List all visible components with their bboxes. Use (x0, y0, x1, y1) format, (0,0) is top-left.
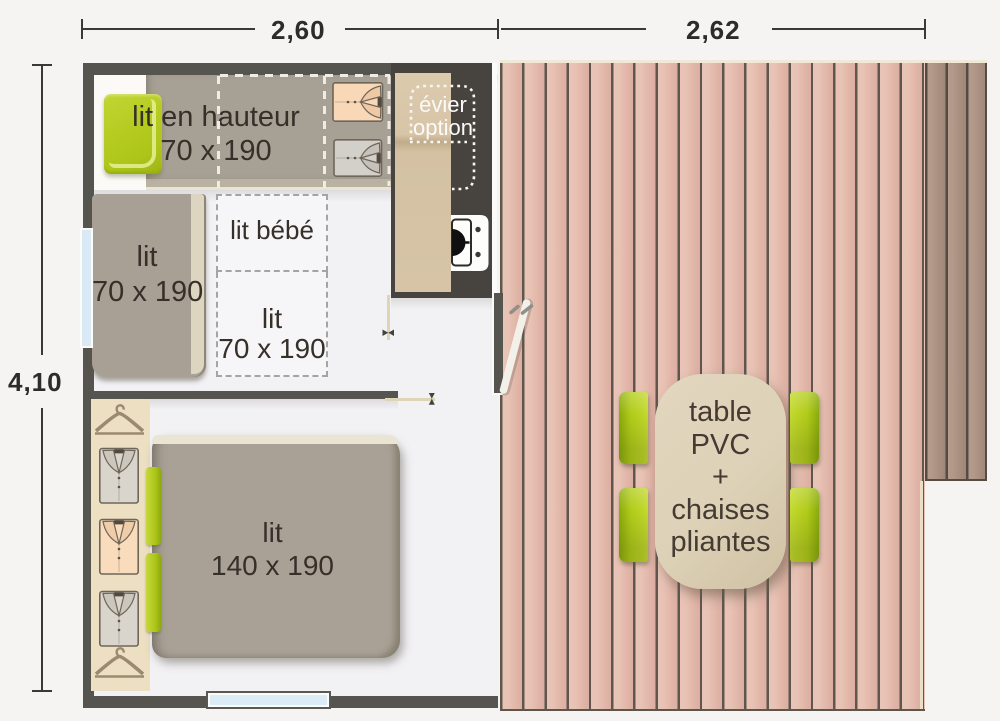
svg-text:option: option (413, 115, 473, 140)
svg-text:évier: évier (419, 92, 467, 117)
